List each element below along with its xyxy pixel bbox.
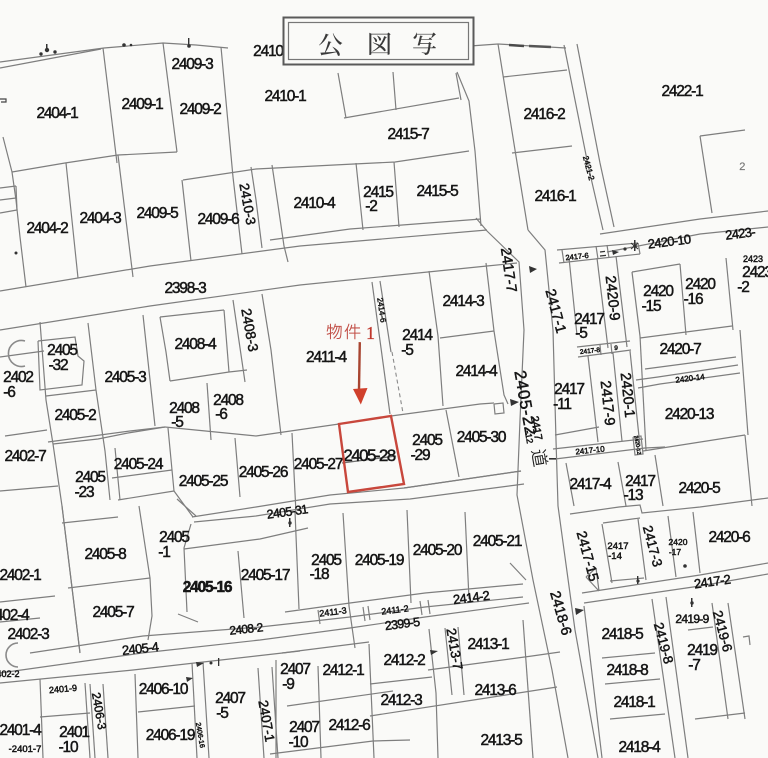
svg-text:2402-7: 2402-7 bbox=[4, 448, 46, 465]
svg-text:2409-6: 2409-6 bbox=[197, 211, 239, 228]
svg-text:2418-4: 2418-4 bbox=[618, 739, 661, 756]
svg-text:2412-6: 2412-6 bbox=[328, 717, 370, 734]
svg-text:2418-5: 2418-5 bbox=[601, 626, 643, 643]
svg-text:-1: -1 bbox=[158, 544, 170, 561]
svg-text:2409-1: 2409-1 bbox=[121, 96, 163, 113]
svg-text:2420: 2420 bbox=[669, 537, 688, 547]
svg-text:2405-21: 2405-21 bbox=[473, 533, 522, 550]
svg-text:2420-13: 2420-13 bbox=[665, 406, 714, 423]
svg-text:2411-4: 2411-4 bbox=[306, 349, 347, 366]
svg-text:2405-20: 2405-20 bbox=[413, 542, 463, 559]
svg-text:2405-26: 2405-26 bbox=[239, 464, 288, 481]
svg-text:2404-2: 2404-2 bbox=[26, 220, 68, 237]
svg-text:-10: -10 bbox=[59, 739, 79, 756]
svg-text:-2401-7: -2401-7 bbox=[9, 744, 42, 755]
svg-text:2419-9: 2419-9 bbox=[675, 612, 709, 626]
svg-text:2405-28: 2405-28 bbox=[343, 446, 395, 465]
svg-text:-5: -5 bbox=[401, 342, 413, 359]
svg-text:2410-1: 2410-1 bbox=[264, 88, 306, 105]
svg-text:-5: -5 bbox=[575, 325, 587, 342]
svg-text:2417-4: 2417-4 bbox=[569, 476, 612, 493]
svg-text:2414-3: 2414-3 bbox=[442, 293, 484, 310]
svg-text:2413-6: 2413-6 bbox=[474, 682, 516, 699]
svg-text:1: 1 bbox=[366, 323, 375, 343]
svg-text:2420-6: 2420-6 bbox=[708, 529, 750, 546]
svg-text:2398-3: 2398-3 bbox=[164, 280, 206, 297]
svg-text:-10: -10 bbox=[289, 734, 309, 751]
svg-text:2414-4: 2414-4 bbox=[455, 363, 498, 380]
svg-text:2402-1: 2402-1 bbox=[0, 567, 41, 584]
svg-text:2412-2: 2412-2 bbox=[383, 652, 425, 669]
svg-text:-6: -6 bbox=[215, 406, 227, 423]
svg-text:-29: -29 bbox=[411, 447, 430, 464]
svg-text:2416-2: 2416-2 bbox=[523, 106, 565, 123]
svg-text:2410-4: 2410-4 bbox=[293, 195, 336, 212]
svg-text:2418-8: 2418-8 bbox=[606, 662, 648, 679]
svg-text:-15: -15 bbox=[642, 298, 661, 315]
svg-text:2413-1: 2413-1 bbox=[467, 636, 509, 653]
svg-text:2413-5: 2413-5 bbox=[480, 732, 522, 749]
svg-text:-17: -17 bbox=[669, 547, 682, 557]
svg-text:-16: -16 bbox=[684, 291, 703, 308]
svg-text:-9: -9 bbox=[282, 676, 294, 693]
svg-text:2405-30: 2405-30 bbox=[457, 429, 507, 446]
svg-text:-5: -5 bbox=[216, 705, 228, 722]
svg-text:2405-3: 2405-3 bbox=[104, 369, 146, 386]
svg-text:2409-2: 2409-2 bbox=[179, 101, 221, 118]
svg-text:-18: -18 bbox=[310, 566, 329, 583]
svg-text:2405-2: 2405-2 bbox=[54, 407, 96, 424]
svg-text:2420-7: 2420-7 bbox=[659, 341, 701, 358]
svg-text:2415-5: 2415-5 bbox=[416, 183, 458, 200]
svg-text:2405-7: 2405-7 bbox=[92, 604, 134, 621]
svg-text:2405-27: 2405-27 bbox=[294, 456, 343, 473]
svg-text:2402-4: 2402-4 bbox=[0, 607, 30, 624]
svg-text:2410: 2410 bbox=[253, 43, 284, 60]
svg-text:-32: -32 bbox=[49, 357, 68, 374]
svg-text:2423: 2423 bbox=[743, 254, 763, 264]
svg-text:-2: -2 bbox=[365, 198, 377, 215]
svg-text:2404-1: 2404-1 bbox=[36, 105, 78, 122]
svg-text:-2: -2 bbox=[737, 279, 749, 296]
svg-text:-14: -14 bbox=[608, 551, 622, 562]
svg-text:2418-1: 2418-1 bbox=[613, 694, 655, 711]
svg-text:2405-16: 2405-16 bbox=[183, 579, 233, 596]
svg-text:2402-3: 2402-3 bbox=[7, 626, 49, 643]
svg-text:2404-3: 2404-3 bbox=[79, 210, 121, 227]
svg-text:2406-19: 2406-19 bbox=[146, 727, 195, 744]
svg-text:2422-1: 2422-1 bbox=[661, 83, 703, 100]
svg-text:2409-3: 2409-3 bbox=[171, 56, 213, 73]
svg-text:2: 2 bbox=[739, 161, 745, 173]
svg-text:2415-7: 2415-7 bbox=[387, 126, 429, 143]
svg-text:2408-4: 2408-4 bbox=[174, 336, 217, 353]
svg-text:-6: -6 bbox=[3, 384, 15, 401]
svg-text:-7: -7 bbox=[688, 657, 700, 674]
svg-text:-5: -5 bbox=[171, 414, 183, 431]
svg-text:2416-1: 2416-1 bbox=[534, 188, 576, 205]
svg-text:-13: -13 bbox=[624, 487, 643, 504]
svg-text:2401-4: 2401-4 bbox=[0, 722, 42, 739]
svg-text:2412-3: 2412-3 bbox=[380, 692, 422, 709]
svg-text:9: 9 bbox=[614, 345, 618, 352]
svg-text:2405-25: 2405-25 bbox=[179, 473, 228, 490]
svg-text:2405-24: 2405-24 bbox=[114, 456, 164, 473]
svg-text:2409-5: 2409-5 bbox=[136, 205, 178, 222]
svg-text:-11: -11 bbox=[553, 396, 571, 413]
svg-text:2420-5: 2420-5 bbox=[678, 480, 720, 497]
svg-text:2405-19: 2405-19 bbox=[355, 552, 404, 569]
svg-text:402-2: 402-2 bbox=[0, 669, 20, 679]
svg-text:2406-10: 2406-10 bbox=[139, 681, 189, 698]
svg-text:2412-1: 2412-1 bbox=[322, 662, 364, 679]
svg-text:2405-8: 2405-8 bbox=[84, 546, 126, 563]
svg-text:2405-17: 2405-17 bbox=[241, 567, 290, 584]
svg-text:-23: -23 bbox=[75, 484, 94, 501]
